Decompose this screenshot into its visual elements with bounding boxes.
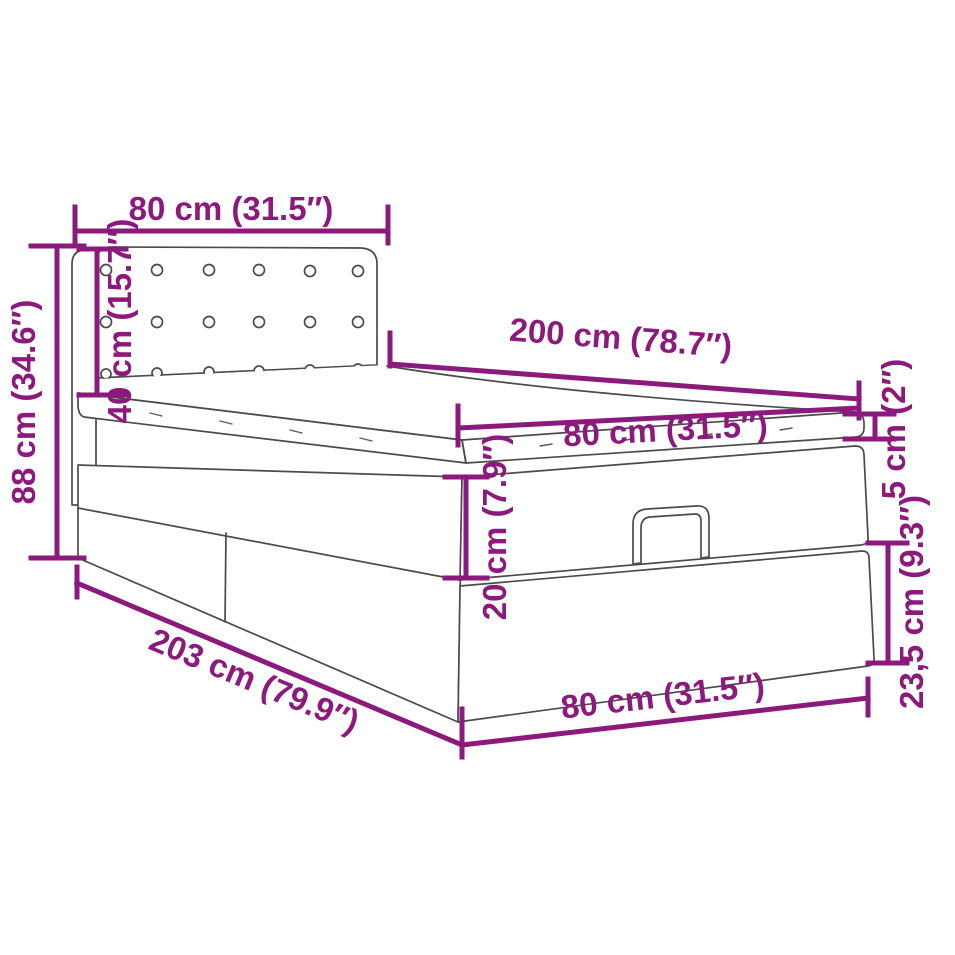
dim-lid-height-label: 20 cm (7.9″) [476,434,513,620]
dim-lower-height: 23,5 cm (9.3″) [868,495,930,709]
dim-bed-length-label: 200 cm (78.7″) [508,311,733,365]
headboard-front-face [96,247,377,378]
dim-total-height-label: 88 cm (34.6″) [5,300,42,505]
dim-headboard-width-label: 80 cm (31.5″) [129,190,334,227]
base-side-seam [225,533,226,622]
dim-mattress-thickness-label: 5 cm (2″) [875,359,912,500]
bed-dimension-diagram: 80 cm (31.5″) 88 cm (34.6″) 40 cm (15.7″… [0,0,955,955]
dim-headboard-height-label: 40 cm (15.7″) [101,219,138,424]
diagram-canvas: 80 cm (31.5″) 88 cm (34.6″) 40 cm (15.7″… [0,0,955,955]
dim-lower-height-label: 23,5 cm (9.3″) [893,495,930,709]
